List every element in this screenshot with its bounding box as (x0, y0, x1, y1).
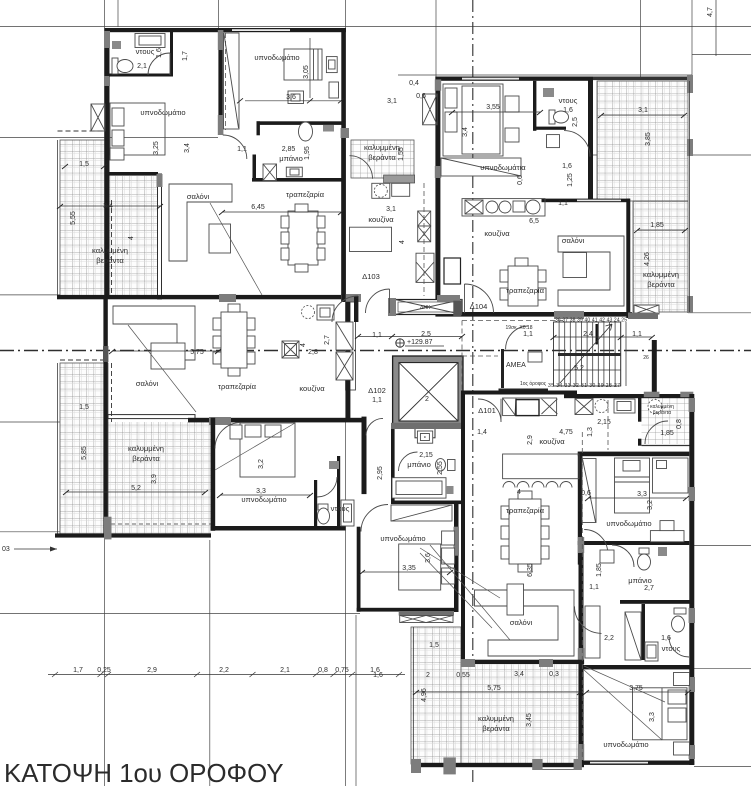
svg-text:5,2: 5,2 (131, 485, 141, 492)
svg-text:2,15: 2,15 (597, 419, 611, 426)
svg-text:3,2: 3,2 (647, 500, 654, 510)
svg-text:1,5: 1,5 (429, 642, 439, 649)
svg-text:5,85: 5,85 (81, 446, 88, 460)
svg-text:1,5: 1,5 (79, 404, 89, 411)
svg-text:2,5: 2,5 (572, 117, 579, 127)
svg-text:4,96: 4,96 (421, 688, 428, 702)
svg-text:4,26: 4,26 (644, 252, 651, 266)
svg-text:μπάνιο: μπάνιο (279, 154, 303, 163)
svg-text:3,55: 3,55 (486, 104, 500, 111)
svg-text:υπνοδωμάτιο: υπνοδωμάτιο (380, 534, 425, 543)
svg-text:4: 4 (128, 236, 135, 240)
svg-text:5,75: 5,75 (190, 349, 204, 356)
svg-text:ΔΗΚ: ΔΗΚ (420, 305, 431, 311)
svg-text:μπάνιο: μπάνιο (407, 460, 431, 469)
svg-text:5,75: 5,75 (487, 685, 501, 692)
svg-text:τραπεζαρία: τραπεζαρία (506, 506, 545, 515)
svg-text:6,45: 6,45 (251, 204, 265, 211)
svg-text:ντους: ντους (331, 504, 350, 513)
svg-text:3,75: 3,75 (629, 685, 643, 692)
svg-text:σαλόνι: σαλόνι (187, 192, 210, 201)
svg-text:2,2: 2,2 (604, 635, 614, 642)
svg-text:3,3: 3,3 (649, 712, 656, 722)
svg-text:1,85: 1,85 (596, 563, 603, 577)
svg-text:2,15: 2,15 (419, 452, 433, 459)
svg-text:υπνοδωμάτιο: υπνοδωμάτιο (140, 108, 185, 117)
svg-text:1,3: 1,3 (587, 427, 594, 437)
svg-text:4,7: 4,7 (707, 7, 714, 17)
svg-text:1,95: 1,95 (304, 146, 311, 160)
svg-text:3,45: 3,45 (526, 713, 533, 727)
svg-text:2,95: 2,95 (377, 466, 384, 480)
svg-text:σαλόνι: σαλόνι (510, 618, 533, 627)
svg-text:1,6: 1,6 (370, 667, 380, 674)
svg-text:υπνοδωμάτιο: υπνοδωμάτιο (241, 495, 286, 504)
svg-text:καλυμμένη: καλυμμένη (364, 143, 400, 152)
svg-text:3,4: 3,4 (103, 203, 113, 210)
svg-text:κουζίνα: κουζίνα (484, 229, 510, 238)
svg-text:1,1: 1,1 (372, 397, 382, 404)
svg-text:1,5: 1,5 (79, 161, 89, 168)
svg-text:Δ103: Δ103 (362, 272, 380, 281)
svg-text:6,5: 6,5 (529, 218, 539, 225)
svg-text:03: 03 (2, 546, 10, 553)
svg-text:3,6: 3,6 (425, 553, 432, 563)
svg-text:36 37 38 39 40 41 42 43 24 25: 36 37 38 39 40 41 42 43 24 25 (555, 318, 627, 324)
svg-text:3,3: 3,3 (256, 488, 266, 495)
svg-text:καλυμμένη: καλυμμένη (643, 270, 679, 279)
svg-text:2: 2 (426, 672, 430, 679)
svg-text:τραπεζαρία: τραπεζαρία (286, 190, 325, 199)
svg-text:βεράντα: βεράντα (653, 409, 671, 416)
svg-text:καλυμμένη: καλυμμένη (478, 714, 514, 723)
svg-text:3,85: 3,85 (645, 132, 652, 146)
svg-text:0,4: 0,4 (409, 80, 419, 87)
svg-text:4,75: 4,75 (559, 429, 573, 436)
svg-text:1,1: 1,1 (632, 331, 642, 338)
svg-text:μπάνιο: μπάνιο (628, 576, 652, 585)
svg-text:2,5: 2,5 (421, 331, 431, 338)
svg-text:ντους: ντους (559, 96, 578, 105)
svg-text:2,4: 2,4 (583, 331, 593, 338)
svg-text:3,1: 3,1 (387, 98, 397, 105)
svg-text:1,7: 1,7 (182, 51, 189, 61)
svg-text:4: 4 (399, 240, 406, 244)
svg-text:υπνοδωμάτιο: υπνοδωμάτιο (606, 519, 651, 528)
svg-text:υπνοδωμάτιο: υπνοδωμάτιο (603, 740, 648, 749)
svg-text:1,4: 1,4 (477, 429, 487, 436)
svg-text:υπνοδωμάτια: υπνοδωμάτια (480, 163, 526, 172)
svg-text:βεράντα: βεράντα (647, 280, 675, 289)
svg-text:5,55: 5,55 (70, 211, 77, 225)
svg-text:3,4: 3,4 (184, 143, 191, 153)
svg-text:4: 4 (300, 343, 307, 347)
svg-text:3,9: 3,9 (151, 474, 158, 484)
svg-text:βεράντα: βεράντα (96, 256, 124, 265)
svg-text:2,8: 2,8 (308, 349, 318, 356)
svg-text:0,6: 0,6 (517, 175, 524, 185)
svg-text:3,6: 3,6 (286, 94, 296, 101)
svg-text:βεράντα: βεράντα (368, 153, 396, 162)
svg-text:0,3: 0,3 (549, 671, 559, 678)
svg-text:κουζίνα: κουζίνα (539, 437, 565, 446)
svg-text:1,6: 1,6 (156, 48, 163, 58)
svg-text:1,1: 1,1 (558, 200, 568, 207)
svg-text:2,1: 2,1 (137, 63, 147, 70)
svg-text:σαλόνι: σαλόνι (562, 236, 585, 245)
svg-text:βεράντα: βεράντα (132, 454, 160, 463)
svg-text:3,25: 3,25 (153, 141, 160, 155)
svg-text:0,8: 0,8 (318, 667, 328, 674)
svg-text:3,05: 3,05 (303, 65, 310, 79)
svg-text:καλυμμένη: καλυμμένη (92, 246, 128, 255)
svg-text:1,1: 1,1 (372, 332, 382, 339)
svg-text:5,2: 5,2 (574, 365, 584, 372)
svg-text:τραπεζαρία: τραπεζαρία (218, 382, 257, 391)
svg-text:1,55: 1,55 (398, 147, 405, 161)
svg-text:1,85: 1,85 (650, 222, 664, 229)
svg-text:Δ102: Δ102 (368, 386, 386, 395)
svg-text:35 34 33 32 31 30 29 28 27: 35 34 33 32 31 30 29 28 27 (548, 383, 620, 389)
svg-text:0,6: 0,6 (416, 93, 426, 100)
svg-text:2,2: 2,2 (219, 667, 229, 674)
svg-text:4: 4 (517, 489, 521, 496)
svg-text:υπνοδωμάτιο: υπνοδωμάτιο (254, 53, 299, 62)
svg-text:6,35: 6,35 (527, 563, 534, 577)
svg-text:Δ101: Δ101 (478, 406, 496, 415)
svg-text:1,1: 1,1 (589, 584, 599, 591)
svg-text:0,8: 0,8 (676, 419, 683, 429)
svg-text:1,6: 1,6 (562, 163, 572, 170)
svg-text:2,55: 2,55 (437, 461, 444, 475)
svg-text:ΑΜΕΑ: ΑΜΕΑ (506, 362, 526, 369)
svg-text:1,6: 1,6 (563, 107, 573, 114)
svg-text:3,35: 3,35 (402, 565, 416, 572)
svg-text:2,7: 2,7 (644, 585, 654, 592)
svg-text:1,7: 1,7 (73, 667, 83, 674)
svg-text:2,1: 2,1 (280, 667, 290, 674)
svg-text:3,4: 3,4 (514, 671, 524, 678)
svg-text:2,7: 2,7 (324, 335, 331, 345)
svg-text:26: 26 (643, 355, 649, 361)
svg-text:0,75: 0,75 (335, 667, 349, 674)
svg-text:2,85: 2,85 (282, 146, 296, 153)
svg-text:ντους: ντους (136, 47, 155, 56)
svg-text:3,1: 3,1 (638, 107, 648, 114)
svg-text:3,4: 3,4 (462, 127, 469, 137)
svg-text:0,25: 0,25 (97, 667, 111, 674)
svg-text:2: 2 (425, 396, 429, 403)
svg-text:ΚΑΤΟΨΗ 1ου ΟΡΟΦΟΥ: ΚΑΤΟΨΗ 1ου ΟΡΟΦΟΥ (4, 760, 284, 786)
svg-text:1,25: 1,25 (567, 173, 574, 187)
svg-text:σαλόνι: σαλόνι (136, 379, 159, 388)
svg-text:1,1: 1,1 (523, 331, 533, 338)
svg-text:2,9: 2,9 (527, 435, 534, 445)
svg-text:Δ104: Δ104 (470, 302, 488, 311)
svg-text:0,55: 0,55 (456, 672, 470, 679)
svg-text:3,2: 3,2 (258, 459, 265, 469)
svg-text:2,9: 2,9 (147, 667, 157, 674)
svg-text:τραπεζαρία: τραπεζαρία (506, 286, 545, 295)
svg-text:3,3: 3,3 (637, 491, 647, 498)
svg-text:1ος όροφος: 1ος όροφος (520, 380, 547, 387)
svg-text:βεράντα: βεράντα (482, 724, 510, 733)
svg-text:3,1: 3,1 (386, 206, 396, 213)
svg-text:κουζίνα: κουζίνα (368, 215, 394, 224)
svg-text:καλυμμένη: καλυμμένη (650, 403, 674, 410)
svg-text:καλυμμένη: καλυμμένη (128, 444, 164, 453)
svg-text:1,85: 1,85 (660, 430, 674, 437)
svg-text:+129.87: +129.87 (407, 339, 433, 346)
svg-text:κουζίνα: κουζίνα (299, 384, 325, 393)
